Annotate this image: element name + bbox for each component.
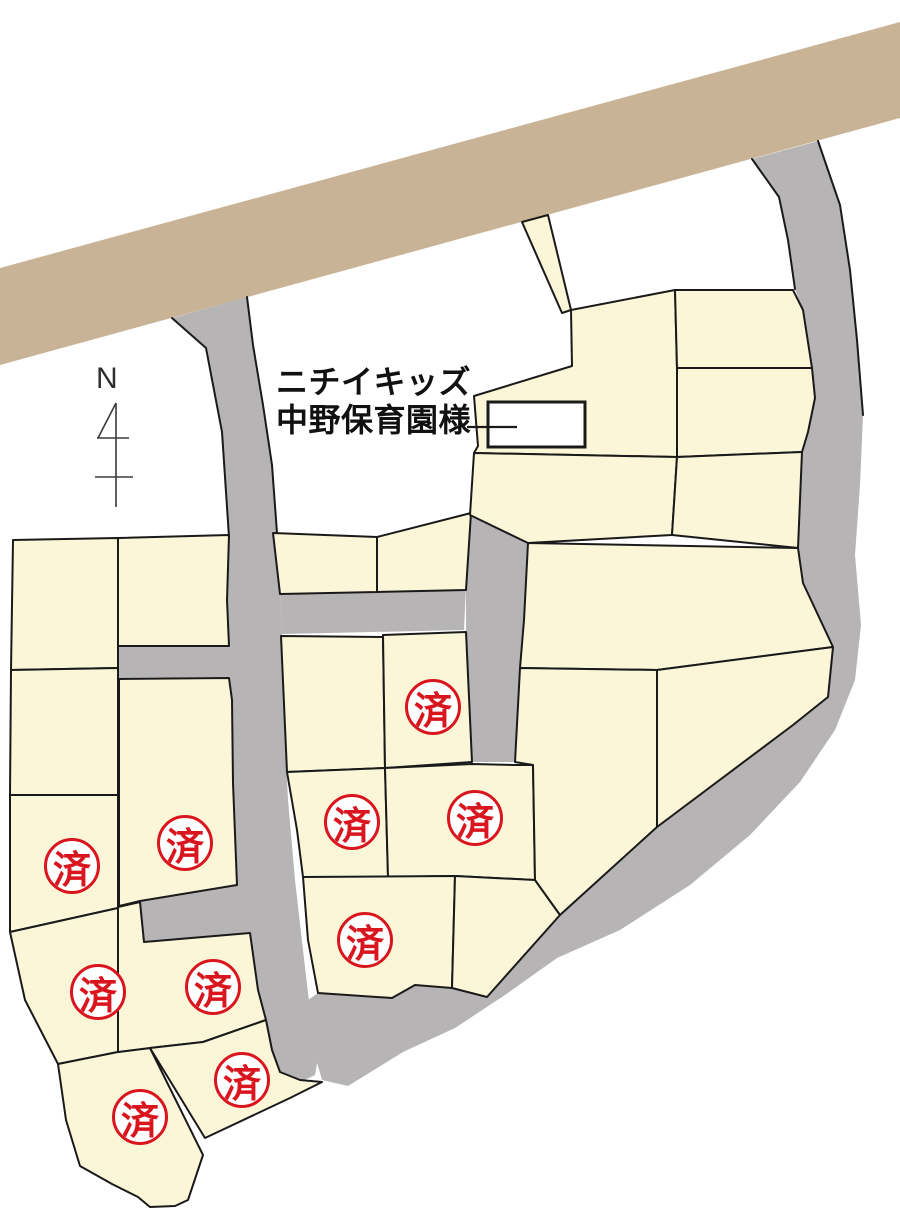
- lot-northeast-row1: [675, 290, 812, 368]
- map-canvas: [0, 0, 900, 1214]
- lot-west-col2-row1: [118, 535, 229, 646]
- nursery-annotation-line1: ニチイキッズ: [276, 363, 471, 401]
- sold-badge: 済: [157, 815, 213, 871]
- lot-west-col1-row1: [11, 538, 118, 670]
- sold-badge-label: 済: [456, 791, 494, 846]
- sold-badge: 済: [70, 964, 126, 1020]
- sold-badge: 済: [337, 912, 393, 968]
- road-branch-west-upper: [117, 644, 229, 678]
- compass-north-label: N: [96, 362, 118, 396]
- sold-badge-label: 済: [121, 1090, 159, 1145]
- sold-badge-label: 済: [166, 816, 204, 871]
- sold-badge-label: 済: [223, 1053, 261, 1108]
- lot-map: N ニチイキッズ 中野保育園様 済済済済済済済済済済: [0, 0, 900, 1214]
- sold-badge: 済: [44, 838, 100, 894]
- sold-badge-label: 済: [194, 960, 232, 1015]
- lot-center-upper-right: [377, 513, 471, 592]
- lot-east-upper: [520, 543, 833, 670]
- lot-east-row2-right: [672, 452, 802, 548]
- sold-badge: 済: [405, 679, 461, 735]
- lot-northeast-row2: [677, 368, 815, 457]
- lot-west-col2-row2: [119, 678, 237, 906]
- sold-badge: 済: [214, 1052, 270, 1108]
- lot-east-row2-left: [470, 453, 677, 543]
- nursery-building-box: [488, 402, 585, 447]
- lot-center-mid-left: [281, 636, 385, 772]
- nursery-annotation: ニチイキッズ 中野保育園様: [276, 363, 471, 439]
- sold-badge: 済: [324, 794, 380, 850]
- sold-badge-label: 済: [79, 965, 117, 1020]
- sold-badge: 済: [112, 1089, 168, 1145]
- sold-badge-label: 済: [53, 839, 91, 894]
- lot-center-upper-left: [273, 533, 377, 594]
- sold-badge-label: 済: [346, 913, 384, 968]
- sold-badge-label: 済: [414, 680, 452, 735]
- north-arrow: [95, 403, 133, 507]
- lot-sliver-north: [522, 215, 571, 313]
- lot-west-col1-row2: [10, 668, 118, 795]
- sold-badge: 済: [447, 790, 503, 846]
- sold-badge-label: 済: [333, 795, 371, 850]
- nursery-annotation-line2: 中野保育園様: [276, 401, 471, 439]
- sold-badge: 済: [185, 959, 241, 1015]
